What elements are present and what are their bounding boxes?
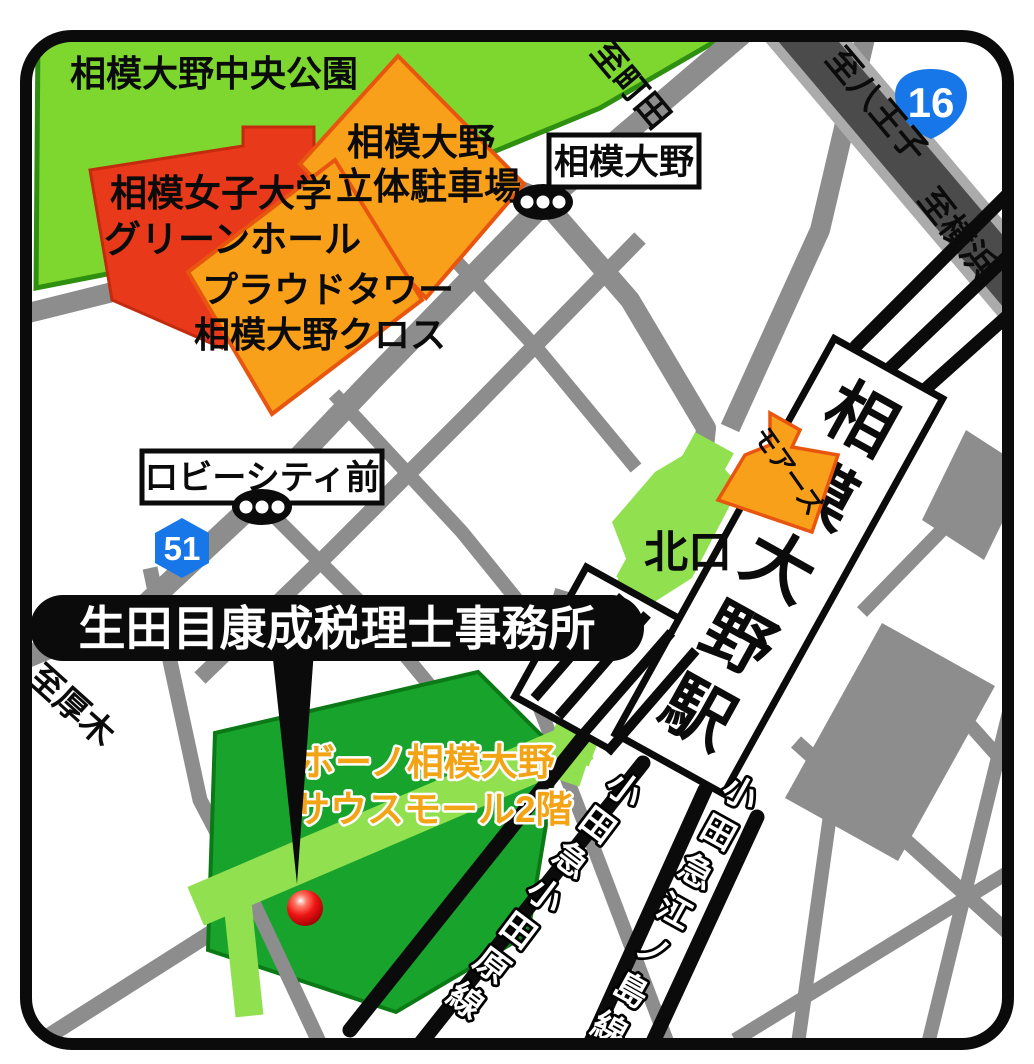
bono-label-line1: ボーノ相模大野	[298, 742, 555, 783]
bus-stop-label: 相模大野	[554, 143, 694, 182]
bono-label-line2: サウスモール2階	[293, 789, 573, 830]
bus-stop-dot	[537, 196, 550, 209]
bus-stop-dot	[240, 501, 253, 514]
location-marker	[287, 890, 323, 926]
direction-atsugi: 至厚木	[21, 658, 122, 754]
office-name: 生田目康成税理士事務所	[79, 604, 596, 656]
gray-building	[785, 623, 995, 861]
parking-label-line2: 立体駐車場	[336, 166, 521, 207]
bus-stop-dot	[553, 196, 566, 209]
proud-tower-label-line2: 相模大野クロス	[194, 314, 446, 355]
park-label: 相模大野中央公園	[70, 53, 358, 94]
bus-stop-dot	[256, 501, 269, 514]
route-16-number: 16	[908, 79, 955, 126]
bus-stop-dot	[272, 501, 285, 514]
road-segment	[735, 870, 1012, 1040]
route-51-number: 51	[164, 530, 201, 567]
deck-segment	[237, 898, 248, 1002]
university-label-line2: グリーンホール	[104, 219, 361, 260]
enoshima-line-track	[652, 817, 757, 1044]
route-51-badge: 51	[155, 518, 209, 578]
bus-stop-lobby-city-mae: ロビーシティ前	[142, 451, 382, 525]
map-canvas: 相 模 大 野 駅 モアーズ 小 田 急 小 田 原 線 小 田	[0, 0, 1034, 1064]
parking-label-line1: 相模大野	[347, 122, 495, 163]
bus-stop-sagami-ono: 相模大野	[513, 135, 699, 220]
proud-tower-label-line1: プラウドタワー	[202, 269, 454, 310]
track-to-machida	[888, 252, 1012, 370]
north-exit-label: 北口	[644, 528, 732, 577]
university-label-line1: 相模女子大学	[110, 172, 332, 214]
bus-stop-dot	[521, 196, 534, 209]
